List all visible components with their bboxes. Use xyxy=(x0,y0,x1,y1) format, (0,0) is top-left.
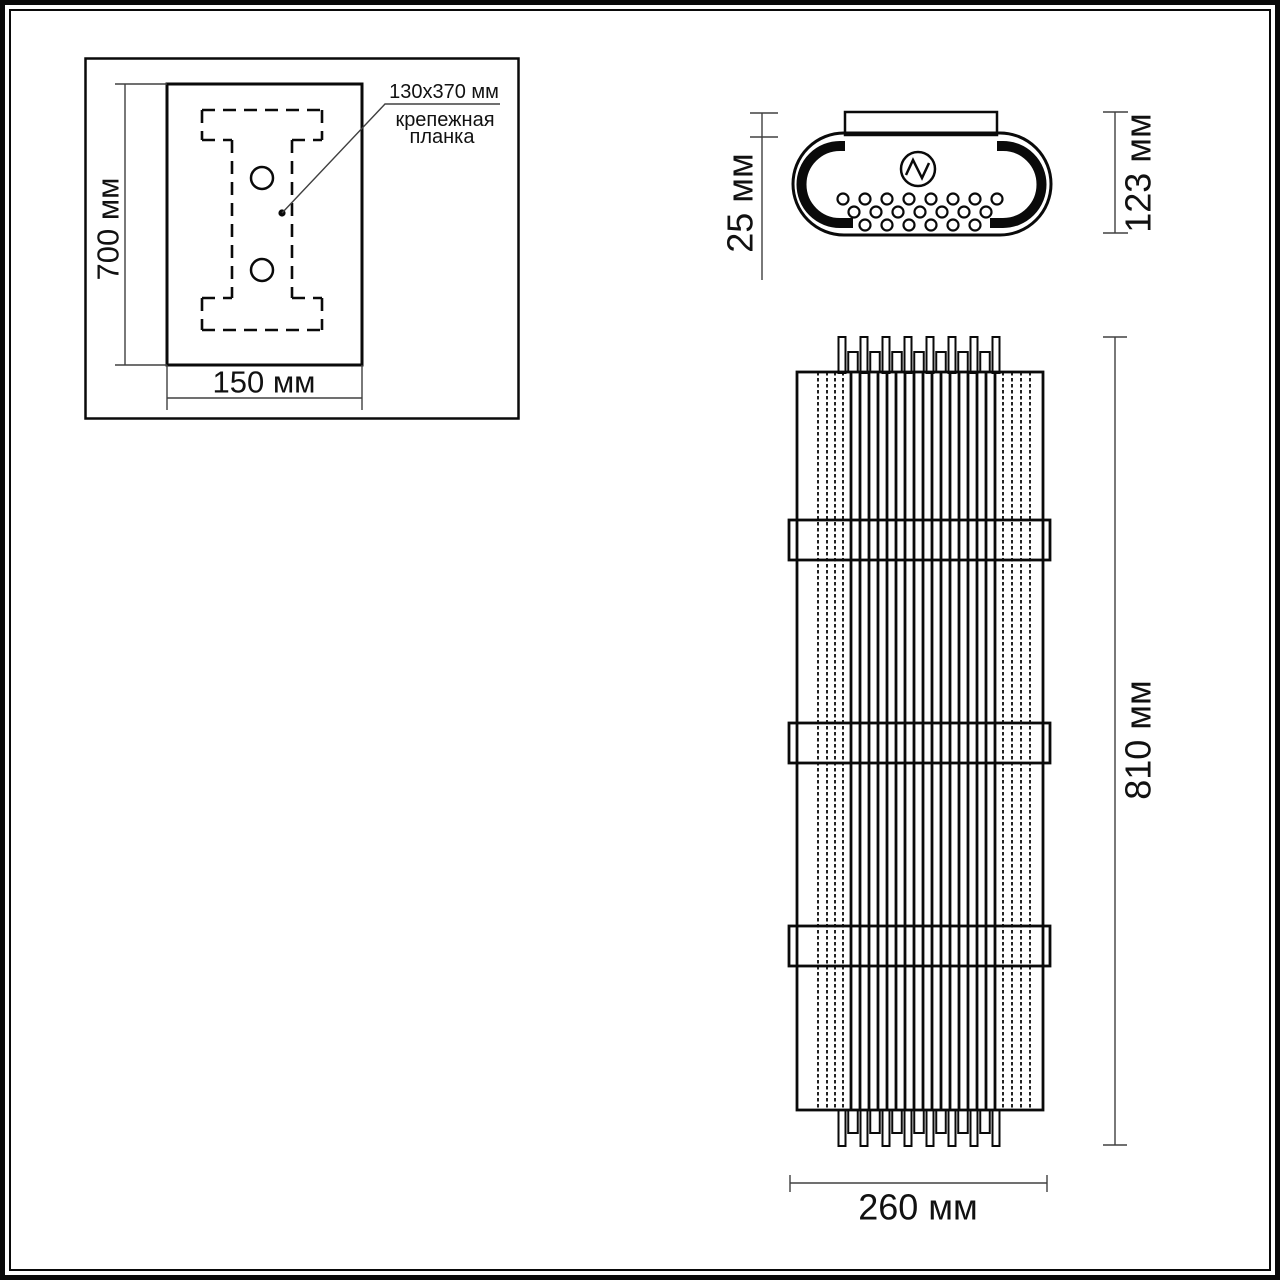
crystal-beads xyxy=(838,194,1003,231)
lamp-symbol-zigzag-icon xyxy=(906,160,929,178)
mounting-bracket-dashed xyxy=(202,110,322,330)
dim-123-label: 123 мм xyxy=(1118,113,1159,233)
wall-mount-inset-view: 130x370 мм крепежная планка 700 мм 150 м… xyxy=(84,57,520,420)
dim-700-label: 700 мм xyxy=(91,178,126,281)
dim-150-label: 150 мм xyxy=(213,365,316,400)
callout-name-label-2: планка xyxy=(410,126,476,148)
dim-260-label: 260 мм xyxy=(858,1187,978,1228)
dim-810-label: 810 мм xyxy=(1118,680,1159,800)
mounting-plate-outline xyxy=(167,84,362,365)
tube-stubs-top-tall xyxy=(839,337,1000,373)
callout-size-label: 130x370 мм xyxy=(389,81,499,103)
tube-stubs-top-short xyxy=(848,352,990,372)
mount-hole-bottom xyxy=(251,259,273,281)
tube-stubs-bottom-short xyxy=(848,1110,990,1133)
decor-band-middle xyxy=(789,723,1050,763)
tube-stubs-bottom-tall xyxy=(839,1110,1000,1146)
reflector-arc-right xyxy=(990,146,1042,223)
decor-band-bottom xyxy=(789,926,1050,966)
technical-drawing-page: { "meta": { "background": "#ffffff", "li… xyxy=(0,0,1280,1280)
lamp-front-view: 810 мм 260 мм xyxy=(770,325,1180,1235)
mount-hole-top xyxy=(251,167,273,189)
glass-tube-lines xyxy=(851,372,995,1110)
decor-band-top xyxy=(789,520,1050,560)
reflector-arc-left xyxy=(802,146,854,223)
body-outline xyxy=(797,372,1043,1110)
dim-25-label: 25 мм xyxy=(720,153,761,253)
lamp-top-view: 25 мм 123 мм xyxy=(700,85,1180,295)
